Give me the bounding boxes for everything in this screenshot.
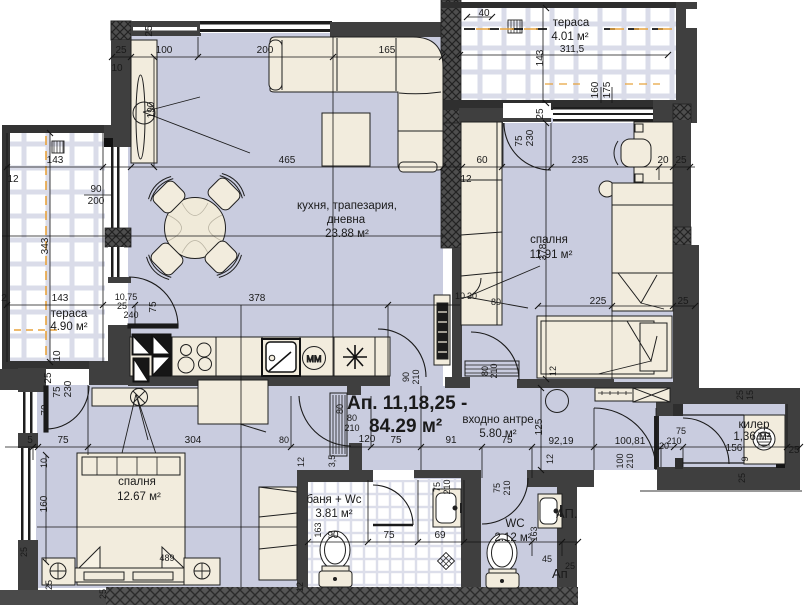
svg-text:23.88 м²: 23.88 м² [325, 228, 369, 240]
svg-text:378: 378 [249, 293, 266, 304]
svg-text:210: 210 [344, 423, 359, 433]
svg-text:84.29 м²: 84.29 м² [369, 416, 442, 437]
svg-text:25: 25 [98, 589, 108, 599]
svg-text:80: 80 [279, 435, 289, 445]
svg-text:489: 489 [159, 553, 174, 563]
svg-text:40: 40 [478, 8, 490, 19]
svg-text:175: 175 [602, 81, 613, 98]
svg-text:90: 90 [90, 184, 102, 195]
svg-text:343: 343 [40, 237, 51, 254]
svg-text:75: 75 [514, 135, 525, 147]
svg-text:10: 10 [111, 63, 123, 74]
svg-text:25: 25 [735, 390, 745, 400]
svg-text:9: 9 [740, 456, 750, 461]
svg-text:92,19: 92,19 [548, 436, 573, 447]
svg-text:225: 225 [590, 296, 607, 307]
svg-text:12: 12 [296, 457, 306, 467]
svg-text:10: 10 [52, 350, 63, 362]
svg-text:входно антре: входно антре [462, 414, 533, 426]
svg-text:25: 25 [115, 45, 127, 56]
svg-text:125: 125 [534, 418, 545, 435]
svg-text:4.01 м²: 4.01 м² [551, 31, 588, 43]
svg-text:80: 80 [335, 404, 345, 414]
svg-text:25: 25 [788, 445, 800, 456]
svg-text:25: 25 [737, 473, 747, 483]
svg-text:WC: WC [505, 518, 524, 530]
svg-text:20: 20 [657, 155, 669, 166]
svg-text:200: 200 [88, 196, 105, 207]
svg-text:304: 304 [185, 435, 202, 446]
svg-text:баня + Wc: баня + Wc [306, 494, 361, 506]
svg-text:Ап. 11,18,25 -: Ап. 11,18,25 - [347, 393, 467, 414]
svg-text:10: 10 [39, 458, 49, 468]
svg-text:75: 75 [432, 482, 442, 492]
svg-text:3.81 м²: 3.81 м² [315, 508, 352, 520]
svg-text:25: 25 [44, 580, 54, 590]
svg-text:килер: килер [739, 419, 770, 431]
svg-text:25: 25 [19, 547, 29, 557]
svg-text:3,5: 3,5 [327, 455, 337, 468]
svg-text:тераса: тераса [51, 308, 88, 320]
svg-text:156: 156 [726, 443, 743, 454]
svg-text:160: 160 [39, 495, 50, 512]
svg-text:210: 210 [502, 480, 512, 495]
svg-text:75: 75 [57, 435, 69, 446]
svg-text:160: 160 [590, 81, 601, 98]
svg-text:120: 120 [359, 434, 376, 445]
svg-text:АП.: АП. [556, 506, 577, 521]
svg-text:210: 210 [625, 453, 635, 468]
svg-text:25: 25 [675, 155, 687, 166]
svg-text:235: 235 [572, 155, 589, 166]
svg-text:75: 75 [390, 435, 402, 446]
svg-text:75: 75 [501, 435, 513, 446]
svg-text:кухня, трапезария,: кухня, трапезария, [297, 200, 397, 212]
svg-text:25: 25 [535, 108, 546, 120]
svg-text:70: 70 [40, 404, 51, 416]
svg-text:11,91 м²: 11,91 м² [530, 249, 573, 261]
svg-text:465: 465 [279, 155, 296, 166]
svg-text:MM: MM [307, 354, 322, 364]
svg-text:165: 165 [379, 45, 396, 56]
svg-text:91: 91 [445, 435, 457, 446]
svg-text:143: 143 [47, 155, 64, 166]
svg-text:80: 80 [347, 413, 357, 423]
svg-text:12.67 м²: 12.67 м² [117, 491, 161, 503]
svg-text:163: 163 [313, 522, 323, 537]
svg-text:90: 90 [327, 530, 339, 541]
svg-text:дневна: дневна [327, 214, 366, 226]
svg-text:10: 10 [455, 291, 465, 301]
svg-text:12: 12 [460, 174, 472, 185]
svg-text:378: 378 [538, 243, 549, 260]
svg-text:спалня: спалня [118, 476, 156, 488]
svg-text:210: 210 [411, 369, 421, 384]
svg-text:230: 230 [63, 380, 74, 397]
svg-text:15: 15 [745, 390, 755, 400]
svg-text:12: 12 [545, 454, 555, 464]
svg-text:спалня: спалня [530, 234, 568, 246]
svg-text:210: 210 [489, 363, 499, 378]
svg-text:100: 100 [615, 453, 625, 468]
svg-text:163: 163 [529, 526, 539, 541]
svg-text:1,36 м²: 1,36 м² [733, 431, 770, 443]
svg-text:75: 75 [676, 426, 686, 436]
svg-text:2.12 м²: 2.12 м² [494, 532, 531, 544]
svg-text:60: 60 [476, 155, 488, 166]
svg-text:25: 25 [144, 25, 155, 37]
svg-text:311,5: 311,5 [560, 44, 585, 55]
svg-text:143: 143 [535, 49, 546, 66]
svg-text:100,81: 100,81 [615, 436, 646, 447]
svg-text:тераса: тераса [553, 17, 590, 29]
svg-text:190: 190 [146, 101, 157, 118]
svg-text:12: 12 [7, 174, 19, 185]
svg-text:5: 5 [27, 435, 33, 446]
svg-text:12: 12 [295, 582, 305, 592]
svg-text:2: 2 [1, 293, 7, 304]
svg-text:25: 25 [677, 296, 689, 307]
svg-text:230: 230 [525, 129, 536, 146]
svg-text:69: 69 [434, 530, 446, 541]
svg-text:240: 240 [123, 310, 138, 320]
svg-text:75: 75 [148, 301, 159, 313]
svg-text:4.90 м²: 4.90 м² [50, 321, 87, 333]
svg-text:75: 75 [52, 386, 63, 398]
svg-text:75: 75 [492, 483, 502, 493]
svg-text:210: 210 [442, 479, 452, 494]
svg-text:80: 80 [491, 297, 501, 307]
svg-text:100: 100 [156, 45, 173, 56]
svg-text:210: 210 [666, 436, 681, 446]
svg-text:25: 25 [565, 561, 575, 571]
svg-text:12: 12 [548, 366, 558, 376]
svg-text:25: 25 [43, 372, 54, 384]
svg-text:90: 90 [401, 372, 411, 382]
svg-text:143: 143 [52, 293, 69, 304]
svg-text:45: 45 [542, 554, 552, 564]
svg-text:30: 30 [467, 291, 477, 301]
svg-text:75: 75 [383, 530, 395, 541]
svg-text:200: 200 [257, 45, 274, 56]
